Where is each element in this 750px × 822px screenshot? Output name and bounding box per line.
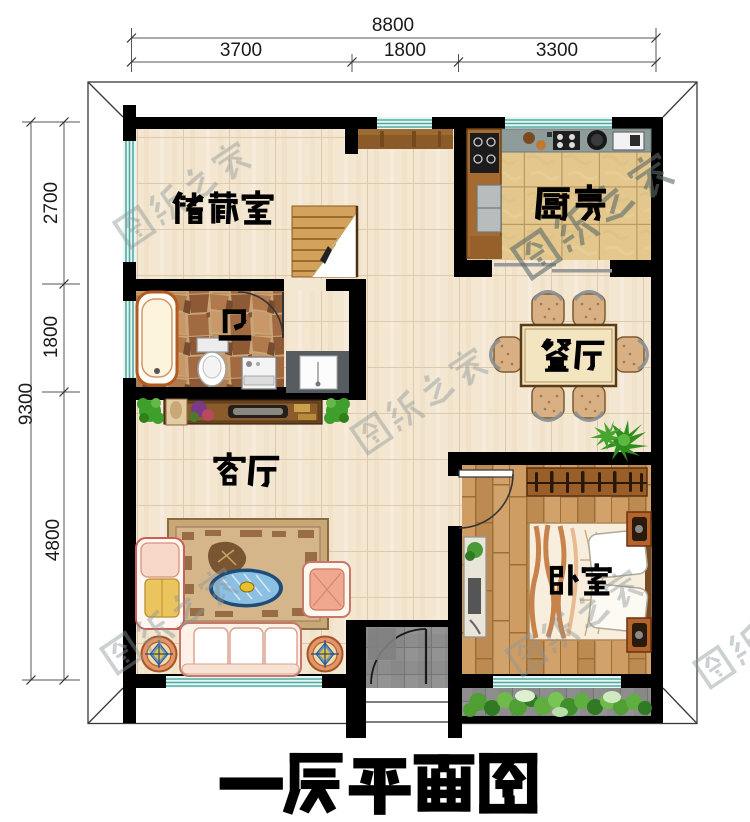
svg-text:9300: 9300 — [16, 383, 37, 425]
svg-text:3300: 3300 — [536, 40, 578, 61]
svg-text:1800: 1800 — [41, 316, 62, 358]
svg-text:3700: 3700 — [220, 40, 262, 61]
svg-text:1800: 1800 — [384, 40, 426, 61]
svg-text:4800: 4800 — [43, 519, 64, 561]
svg-text:8800: 8800 — [372, 15, 414, 36]
svg-text:2700: 2700 — [41, 182, 62, 224]
